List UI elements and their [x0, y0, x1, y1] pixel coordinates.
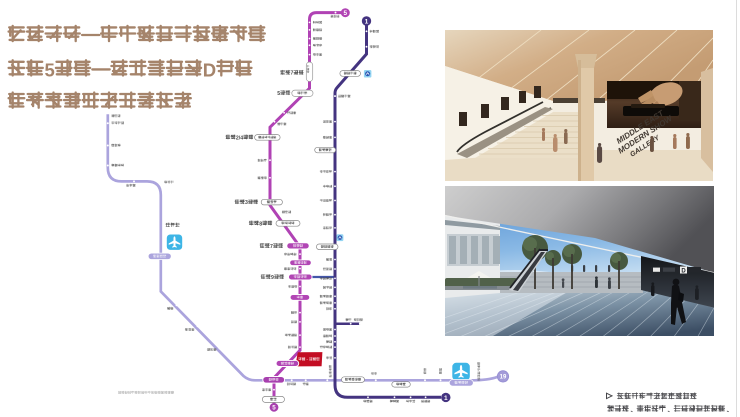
- svg-text:7: 7: [270, 244, 273, 250]
- svg-text:5: 5: [272, 405, 276, 412]
- svg-text:8: 8: [259, 221, 262, 227]
- svg-text:3: 3: [245, 200, 248, 206]
- svg-text:9: 9: [271, 275, 274, 281]
- svg-text:4: 4: [240, 135, 243, 141]
- svg-text:5: 5: [277, 91, 280, 97]
- svg-text:7: 7: [291, 71, 294, 77]
- svg-text:5: 5: [344, 10, 348, 17]
- svg-text:1: 1: [365, 18, 369, 25]
- svg-text:D: D: [681, 269, 686, 275]
